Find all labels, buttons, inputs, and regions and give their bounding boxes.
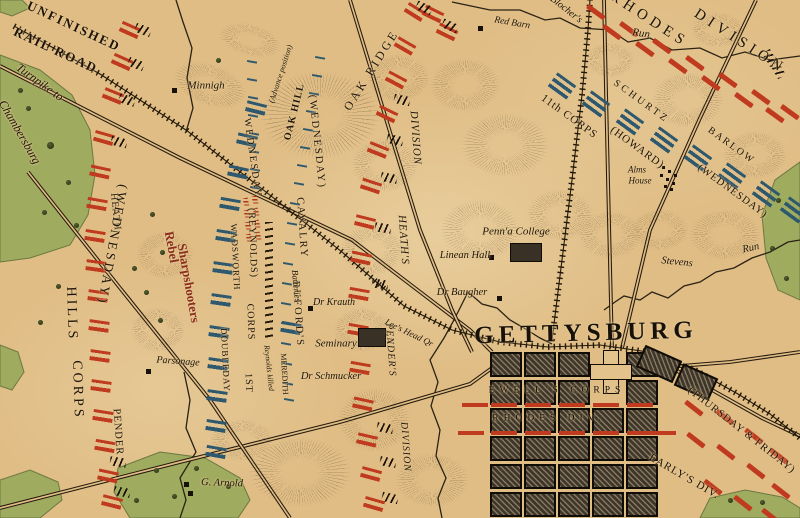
street-troop-bar-red bbox=[593, 403, 619, 407]
street-troop-bar-red bbox=[525, 431, 551, 435]
tree-symbol bbox=[47, 142, 54, 149]
town-block bbox=[524, 436, 556, 461]
tree-symbol bbox=[42, 210, 47, 215]
map-label: PENDER bbox=[110, 408, 124, 455]
street-troop-bar-red bbox=[650, 431, 676, 435]
tree-symbol bbox=[56, 284, 61, 289]
tree-symbol bbox=[158, 318, 163, 323]
map-label: Penn'a College bbox=[482, 227, 549, 238]
map-label: Linean Hall bbox=[440, 251, 490, 262]
map-label: RHODES DIV. bbox=[492, 414, 605, 424]
infantry-tick-column bbox=[265, 222, 273, 340]
tree-symbol bbox=[194, 466, 199, 471]
tree-symbol bbox=[160, 250, 165, 255]
building-symbol bbox=[188, 491, 193, 496]
map-label: House bbox=[629, 177, 652, 186]
tree-symbol bbox=[770, 246, 775, 251]
tree-symbol bbox=[150, 212, 155, 217]
camp-dot bbox=[674, 174, 677, 177]
woods-patch bbox=[762, 162, 800, 300]
building-symbol bbox=[184, 482, 189, 487]
tree-symbol bbox=[216, 58, 221, 63]
tree-symbol bbox=[132, 266, 137, 271]
map-label: G. Arnold bbox=[201, 478, 243, 490]
building-symbol bbox=[146, 369, 151, 374]
street-troop-bar-red bbox=[627, 403, 653, 407]
tree-symbol bbox=[760, 500, 765, 505]
map-label: DIVISION bbox=[398, 422, 411, 473]
camp-dot bbox=[672, 182, 675, 185]
map-label: MEREDITH bbox=[279, 353, 289, 395]
town-block bbox=[524, 352, 556, 377]
road-core bbox=[604, 0, 612, 348]
town-block bbox=[490, 464, 522, 489]
gettysburg-battle-map: UNFINISHEDRAIL ROADTurnpike toChambersbu… bbox=[0, 0, 800, 518]
street-troop-bar-red bbox=[559, 403, 585, 407]
tree-symbol bbox=[172, 494, 177, 499]
map-label: CORPS bbox=[69, 360, 85, 420]
map-label: EWELL'S CORPS bbox=[489, 386, 626, 396]
tree-symbol bbox=[66, 180, 71, 185]
tree-symbol bbox=[144, 290, 149, 295]
landmark-building bbox=[358, 328, 386, 347]
camp-dot bbox=[670, 188, 673, 191]
map-label: Seminary bbox=[315, 339, 357, 350]
tree-symbol bbox=[38, 320, 43, 325]
street-troop-bar-red bbox=[593, 431, 619, 435]
town-block bbox=[490, 492, 522, 517]
town-block bbox=[558, 352, 590, 377]
stream bbox=[176, 0, 193, 132]
landmark-building bbox=[510, 243, 542, 262]
town-block bbox=[490, 436, 522, 461]
street-troop-bar-red bbox=[491, 403, 517, 407]
tree-symbol bbox=[784, 276, 789, 281]
town-block bbox=[626, 408, 658, 433]
map-label: CORPS bbox=[244, 303, 255, 340]
town-block bbox=[626, 492, 658, 517]
tree-symbol bbox=[154, 468, 159, 473]
camp-dot bbox=[666, 178, 669, 181]
tree-symbol bbox=[728, 498, 733, 503]
railroad-ties bbox=[552, 0, 590, 340]
town-block bbox=[558, 492, 590, 517]
town-block bbox=[626, 380, 658, 405]
street-troop-bar-red bbox=[458, 431, 484, 435]
street-troop-bar-red bbox=[559, 431, 585, 435]
tree-symbol bbox=[26, 106, 31, 111]
street-troop-bar-red bbox=[462, 403, 488, 407]
tree-symbol bbox=[18, 88, 23, 93]
map-label: HILLS bbox=[63, 286, 79, 341]
street-troop-bar-red bbox=[491, 431, 517, 435]
town-block bbox=[490, 352, 522, 377]
tree-symbol bbox=[134, 498, 139, 503]
town-block bbox=[524, 464, 556, 489]
town-block bbox=[558, 464, 590, 489]
building-symbol bbox=[478, 26, 483, 31]
map-label: Alms bbox=[628, 166, 646, 175]
town-block bbox=[592, 492, 624, 517]
map-label: GETTYSBURG bbox=[474, 318, 698, 349]
camp-dot bbox=[660, 174, 663, 177]
map-label: 1ST bbox=[243, 373, 254, 393]
building-symbol bbox=[172, 88, 177, 93]
camp-dot bbox=[668, 170, 671, 173]
map-label: Dr Schmucker bbox=[301, 372, 361, 383]
building-symbol bbox=[497, 296, 502, 301]
map-label: HEATH'S bbox=[396, 215, 410, 266]
woods-patch bbox=[0, 345, 24, 390]
town-block bbox=[524, 492, 556, 517]
map-label: Dr Baugher bbox=[437, 288, 487, 299]
town-block bbox=[592, 436, 624, 461]
street-troop-bar-red bbox=[525, 403, 551, 407]
map-label: (REYNOLDS) bbox=[246, 208, 258, 278]
camp-dot bbox=[664, 185, 667, 188]
map-label: Dr Krauth bbox=[313, 298, 355, 308]
town-block bbox=[558, 436, 590, 461]
map-label: Minnigh bbox=[187, 81, 224, 92]
town-square-diamond bbox=[590, 364, 632, 380]
tree-symbol bbox=[74, 223, 79, 228]
town-block bbox=[626, 464, 658, 489]
town-block bbox=[592, 464, 624, 489]
map-label: Run bbox=[631, 27, 650, 40]
